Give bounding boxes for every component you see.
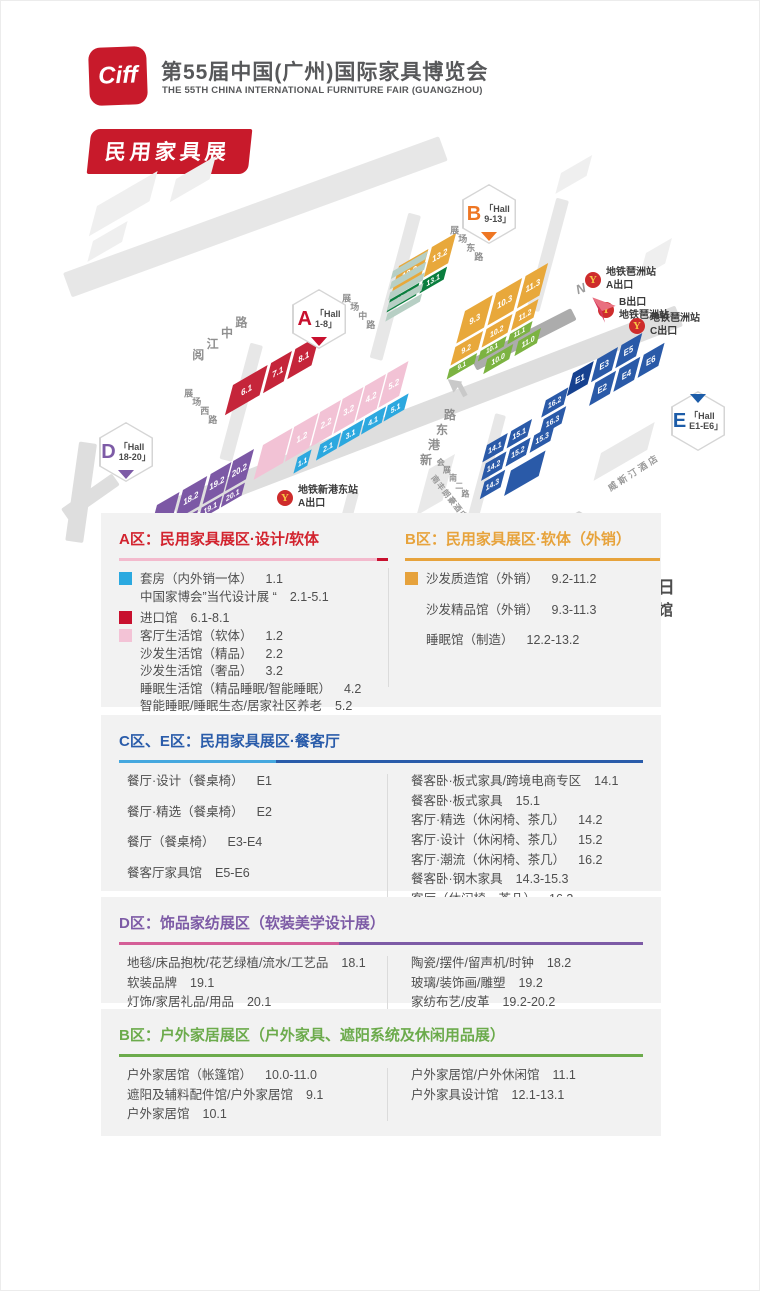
color-swatch-icon	[119, 572, 132, 585]
metro-line2: C出口	[650, 326, 700, 339]
legend-item: 餐客卧·钢木家具14.3-15.3	[403, 872, 618, 888]
city-block	[555, 155, 592, 194]
legend-item-halls: 9.3-11.3	[552, 603, 597, 617]
legend-item-halls: 12.1-13.1	[512, 1088, 565, 1102]
legend-item: 客厅生活馆（软体）1.2	[119, 629, 388, 645]
hall-block-label: 14.1	[488, 440, 502, 456]
legend-item-halls: E3-E4	[228, 835, 263, 849]
legend-item: 餐客卧·板式家具15.1	[403, 794, 618, 810]
legend-item-halls: 6.1-8.1	[191, 611, 230, 625]
legend-item-label: 遮阳及辅料配件馆/户外家居馆	[127, 1088, 293, 1102]
hall-block-label: 3.2	[342, 403, 354, 418]
legend-item-halls: 4.2	[344, 682, 361, 696]
hall-block-label: 20.2	[231, 461, 247, 479]
color-swatch-icon	[119, 590, 132, 603]
legend-item: 套房（内外销一体）1.1	[119, 572, 388, 588]
section-a-list: 套房（内外销一体）1.1 中国家博会”当代设计展 “2.1-5.1 进口馆6.1…	[119, 572, 388, 715]
section-outdoor-title: B区：户外家居展区（户外家具、遮阳系统及休闲用品展）	[119, 1024, 661, 1045]
fair-title-en: THE 55TH CHINA INTERNATIONAL FURNITURE F…	[162, 85, 483, 96]
hall-range-line2: 1-8」	[315, 319, 341, 329]
hall-letter: A	[298, 308, 312, 331]
hall-badge: B 「Hall 9-13」	[462, 184, 516, 244]
section-outdoor-left-list: 户外家居馆（帐篷馆）10.0-11.0 遮阳及辅料配件馆/户外家居馆9.1 户外…	[119, 1068, 387, 1127]
hall-block-label: 13.2	[432, 246, 448, 264]
legend-item-halls: 9.2-11.2	[552, 572, 597, 586]
hall-block-label: 9.1	[457, 361, 466, 372]
legend-item: 遮阳及辅料配件馆/户外家居馆9.1	[119, 1088, 387, 1104]
legend-item-label: 餐客卧·钢木家具	[411, 872, 503, 886]
legend-item-halls: 1.2	[266, 629, 283, 643]
city-block	[170, 156, 216, 202]
hall-block-label: 8.1	[297, 349, 309, 364]
hall-block-label: E2	[597, 381, 608, 396]
legend-section-d: D区：饰品家纺展区（软装美学设计展） 地毯/床品抱枕/花艺绿植/流水/工艺品18…	[101, 897, 661, 1003]
hall-block: E6	[638, 343, 665, 378]
metro-line2: A出口	[298, 498, 358, 511]
hall-block-label: 9.3	[469, 312, 481, 327]
hall-block-label: 9.2	[461, 341, 472, 355]
section-outdoor-right-list: 户外家居馆/户外休闲馆11.1 户外家具设计馆12.1-13.1	[388, 1068, 576, 1127]
hall-block-label: 2.2	[320, 416, 332, 431]
legend-section-a-b: A区：民用家具展区·设计/软体 套房（内外销一体）1.1 中国家博会”当代设计展…	[101, 513, 661, 707]
color-swatch-icon	[119, 629, 132, 642]
hall-block-label: 10.3	[497, 293, 513, 311]
legend-item-halls: E1	[257, 774, 272, 788]
hall-block-label: 16.2	[548, 394, 562, 410]
legend-item: 陶瓷/摆件/留声机/时钟18.2	[403, 956, 571, 972]
legend-section-ce: C区、E区：民用家具展区·餐客厅 餐厅·设计（餐桌椅）E1 餐厅·精选（餐桌椅）…	[101, 715, 661, 891]
legend-item-halls: 14.1	[594, 774, 618, 788]
section-ce-right-list: 餐客卧·板式家具/跨境电商专区14.1 餐客卧·板式家具15.1 客厅·精选（休…	[388, 774, 618, 911]
section-b-title: B区：民用家具展区·软体（外销）	[405, 528, 660, 549]
color-swatch-icon	[405, 603, 418, 616]
legend-item-label: 户外家居馆	[127, 1107, 190, 1121]
legend-item: 睡眠生活馆（精品睡眠/智能睡眠）4.2	[119, 682, 388, 698]
hall-block-label: 14.2	[487, 458, 501, 474]
legend-item: 客厅·潮流（休闲椅、茶几）16.2	[403, 853, 618, 869]
legend-item: 玻璃/装饰画/雕塑19.2	[403, 976, 571, 992]
legend-item-halls: 9.1	[306, 1088, 323, 1102]
legend-item-halls: 19.2	[518, 976, 542, 990]
legend-item-halls: 11.1	[552, 1068, 575, 1082]
legend-item: 户外家具设计馆12.1-13.1	[403, 1088, 576, 1104]
legend-item-halls: E5-E6	[215, 866, 250, 880]
legend-item: 餐厅（餐桌椅）E3-E4	[119, 835, 387, 851]
page: Ciff 第55届中国(广州)国际家具博览会 THE 55TH CHINA IN…	[0, 0, 760, 1291]
legend-item-halls: 19.1	[190, 976, 214, 990]
hall-range-line2: E1-E6」	[689, 421, 723, 431]
road-turn-arrow-icon	[438, 369, 462, 392]
metro-exit: Y 地铁琶洲站 A出口	[585, 267, 656, 292]
legend-item-label: 陶瓷/摆件/留声机/时钟	[411, 956, 534, 970]
hall-block-label: 4.2	[365, 390, 377, 405]
legend-item-label: 客厅·潮流（休闲椅、茶几）	[411, 853, 565, 867]
legend-item-halls: E2	[257, 805, 272, 819]
section-d-underline	[119, 942, 643, 945]
legend-item: 进口馆6.1-8.1	[119, 611, 388, 627]
color-swatch-icon	[405, 572, 418, 585]
metro-line1: B出口	[619, 297, 669, 310]
legend-item: 软装品牌19.1	[119, 976, 387, 992]
legend-item: 户外家居馆（帐篷馆）10.0-11.0	[119, 1068, 387, 1084]
legend-item: 客厅·精选（休闲椅、茶几）14.2	[403, 813, 618, 829]
legend-item: 餐厅·设计（餐桌椅）E1	[119, 774, 387, 790]
hall-block-label: 1.1	[297, 455, 307, 468]
hall-block-label: 6.1	[240, 382, 252, 397]
hall-letter: B	[467, 203, 481, 226]
section-a-underline	[119, 558, 388, 561]
hall-badge: E 「Hall E1-E6」	[671, 391, 725, 451]
legend-item: 中国家博会”当代设计展 “2.1-5.1	[119, 590, 388, 606]
section-d-right-list: 陶瓷/摆件/留声机/时钟18.2 玻璃/装饰画/雕塑19.2 家纺布艺/皮革19…	[388, 956, 571, 1015]
legend-item: 沙发精品馆（外销）9.3-11.3	[405, 603, 660, 619]
hall-block-label: 11.3	[525, 277, 541, 295]
legend-item-halls: 15.1	[516, 794, 540, 808]
hall-block-label: 10.2	[490, 323, 504, 339]
legend-item: 智能睡眠/睡眠生态/居家社区养老5.2	[119, 699, 388, 715]
legend-item: 户外家居馆10.1	[119, 1107, 387, 1123]
legend-item-halls: 2.1-5.1	[290, 590, 329, 604]
legend-item-label: 软装品牌	[127, 976, 177, 990]
legend-item: 沙发质造馆（外销）9.2-11.2	[405, 572, 660, 588]
legend-item-halls: 16.2	[578, 853, 602, 867]
legend-item-label: 沙发生活馆（精品）	[140, 647, 253, 661]
hall-range-line1: 「Hall	[119, 442, 151, 452]
hall-range-line1: 「Hall	[315, 309, 341, 319]
hall-block-label: 1.2	[296, 430, 308, 445]
legend-item-label: 客厅·设计（休闲椅、茶几）	[411, 833, 565, 847]
legend-item-label: 灯饰/家居礼品/用品	[127, 995, 234, 1009]
color-swatch-icon	[119, 664, 132, 677]
legend-item-halls: 1.1	[266, 572, 283, 586]
legend-item-label: 沙发生活馆（奢品）	[140, 664, 253, 678]
metro-logo-icon: Y	[585, 272, 601, 288]
hall-badge: D 「Hall 18-20」	[99, 422, 153, 482]
legend-item-label: 户外家居馆（帐篷馆）	[127, 1068, 252, 1082]
legend-item-label: 餐厅（餐桌椅）	[127, 835, 215, 849]
legend-item-label: 地毯/床品抱枕/花艺绿植/流水/工艺品	[127, 956, 328, 970]
hall-block-label: 5.2	[387, 377, 399, 392]
section-a-title: A区：民用家具展区·设计/软体	[119, 528, 388, 549]
metro-logo-icon: Y	[277, 490, 293, 506]
legend-item-halls: 20.1	[247, 995, 271, 1009]
legend-item-halls: 18.1	[341, 956, 365, 970]
legend-section-outdoor: B区：户外家居展区（户外家具、遮阳系统及休闲用品展） 户外家居馆（帐篷馆）10.…	[101, 1009, 661, 1136]
hall-block-label: 14.3	[485, 476, 499, 492]
legend-item-label: 餐客厅家具馆	[127, 866, 202, 880]
section-outdoor-underline	[119, 1054, 643, 1057]
legend-item-halls: 15.2	[578, 833, 602, 847]
legend-item-halls: 10.0-11.0	[265, 1068, 317, 1082]
color-swatch-icon	[119, 647, 132, 660]
hall-block-label: 7.1	[271, 364, 283, 379]
hall-block-label: 15.1	[512, 426, 526, 442]
legend-item-label: 餐客卧·板式家具/跨境电商专区	[411, 774, 581, 788]
hall-badge: A 「Hall 1-8」	[292, 289, 346, 349]
legend-item-halls: 19.2-20.2	[502, 995, 555, 1009]
legend-item-halls: 3.2	[266, 664, 283, 678]
metro-line1: 地铁琶洲站	[606, 267, 656, 280]
ciff-logo: Ciff	[88, 46, 148, 106]
hall-letter: E	[673, 410, 686, 433]
metro-logo-icon: Y	[629, 318, 645, 334]
color-swatch-icon	[119, 682, 132, 695]
hall-range-line1: 「Hall	[484, 204, 511, 214]
metro-exit: Y 地铁琶洲站 C出口	[629, 313, 700, 338]
hall-block-label: E1	[575, 371, 586, 386]
color-swatch-icon	[119, 699, 132, 712]
legend-item-label: 餐厅·精选（餐桌椅）	[127, 805, 244, 819]
legend-item-label: 户外家具设计馆	[411, 1088, 499, 1102]
legend-item-label: 沙发质造馆（外销）	[426, 572, 539, 586]
section-ce-underline	[119, 760, 643, 763]
hall-block-label: 11.2	[518, 307, 532, 323]
section-d-left-list: 地毯/床品抱枕/花艺绿植/流水/工艺品18.1 软装品牌19.1 灯饰/家居礼品…	[119, 956, 387, 1015]
hall-block-label: 15.3	[535, 430, 549, 446]
hall-range-line2: 18-20」	[119, 452, 151, 462]
legend-item: 餐厅·精选（餐桌椅）E2	[119, 805, 387, 821]
legend-item-halls: 2.2	[266, 647, 283, 661]
section-b-underline	[405, 558, 660, 561]
legend-item-label: 中国家博会”当代设计展 “	[140, 590, 277, 604]
color-swatch-icon	[119, 611, 132, 624]
section-d-title: D区：饰品家纺展区（软装美学设计展）	[119, 912, 661, 933]
legend-item-label: 睡眠生活馆（精品睡眠/智能睡眠）	[140, 682, 331, 696]
hall-block-label: E6	[646, 353, 657, 368]
legend-item-label: 家纺布艺/皮革	[411, 995, 489, 1009]
legend-item: 餐客厅家具馆E5-E6	[119, 866, 387, 882]
section-ce-title: C区、E区：民用家具展区·餐客厅	[119, 730, 661, 751]
legend-item-label: 沙发精品馆（外销）	[426, 603, 539, 617]
legend-item: 睡眠馆（制造）12.2-13.2	[405, 633, 660, 649]
hall-block: 7.1	[263, 351, 292, 393]
legend-item-label: 餐厅·设计（餐桌椅）	[127, 774, 244, 788]
legend-item-label: 客厅·精选（休闲椅、茶几）	[411, 813, 565, 827]
street-label: 展场西路	[181, 384, 223, 428]
hall-letter: D	[101, 441, 115, 464]
compass-arrow-icon	[586, 291, 622, 327]
legend-item: 地毯/床品抱枕/花艺绿植/流水/工艺品18.1	[119, 956, 387, 972]
legend-item-halls: 10.1	[203, 1107, 227, 1121]
legend-item-label: 餐客卧·板式家具	[411, 794, 503, 808]
legend-item-label: 进口馆	[140, 611, 178, 625]
legend-item: 沙发生活馆（精品）2.2	[119, 647, 388, 663]
hall-block-label: E5	[623, 343, 634, 358]
hall-block-label: E4	[621, 367, 632, 382]
legend-item: 客厅·设计（休闲椅、茶几）15.2	[403, 833, 618, 849]
legend-item-halls: 18.2	[547, 956, 571, 970]
section-b-list: 沙发质造馆（外销）9.2-11.2 沙发精品馆（外销）9.3-11.3 睡眠馆（…	[405, 572, 660, 649]
section-ce-left-list: 餐厅·设计（餐桌椅）E1 餐厅·精选（餐桌椅）E2 餐厅（餐桌椅）E3-E4 餐…	[119, 774, 387, 911]
hall-range-line2: 9-13」	[484, 214, 511, 224]
hall-range-line1: 「Hall	[689, 411, 723, 421]
legend-item-label: 玻璃/装饰画/雕塑	[411, 976, 505, 990]
legend-item-label: 户外家居馆/户外休闲馆	[411, 1068, 539, 1082]
metro-exit: Y 地铁新港东站 A出口	[277, 485, 358, 510]
hall-block-label: 19.2	[209, 474, 225, 492]
legend-item-label: 客厅生活馆（软体）	[140, 629, 253, 643]
hall-block-label: 15.2	[511, 444, 525, 460]
fair-title: 第55届中国(广州)国际家具博览会	[161, 56, 488, 86]
legend-item-halls: 14.3-15.3	[516, 872, 569, 886]
hall-block-label: E3	[599, 357, 610, 372]
legend-item-halls: 14.2	[578, 813, 602, 827]
legend-item-halls: 12.2-13.2	[527, 633, 580, 647]
hall-block-label: 18.2	[183, 489, 199, 507]
legend-item: 沙发生活馆（奢品）3.2	[119, 664, 388, 680]
legend-item-label: 套房（内外销一体）	[140, 572, 253, 586]
color-swatch-icon	[405, 633, 418, 646]
metro-line1: 地铁琶洲站	[650, 313, 700, 326]
legend-item: 餐客卧·板式家具/跨境电商专区14.1	[403, 774, 618, 790]
legend-item-halls: 5.2	[335, 699, 352, 713]
legend-item: 户外家居馆/户外休闲馆11.1	[403, 1068, 576, 1084]
metro-line1: 地铁新港东站	[298, 485, 358, 498]
legend-item-label: 睡眠馆（制造）	[426, 633, 514, 647]
legend-item-label: 智能睡眠/睡眠生态/居家社区养老	[140, 699, 322, 713]
